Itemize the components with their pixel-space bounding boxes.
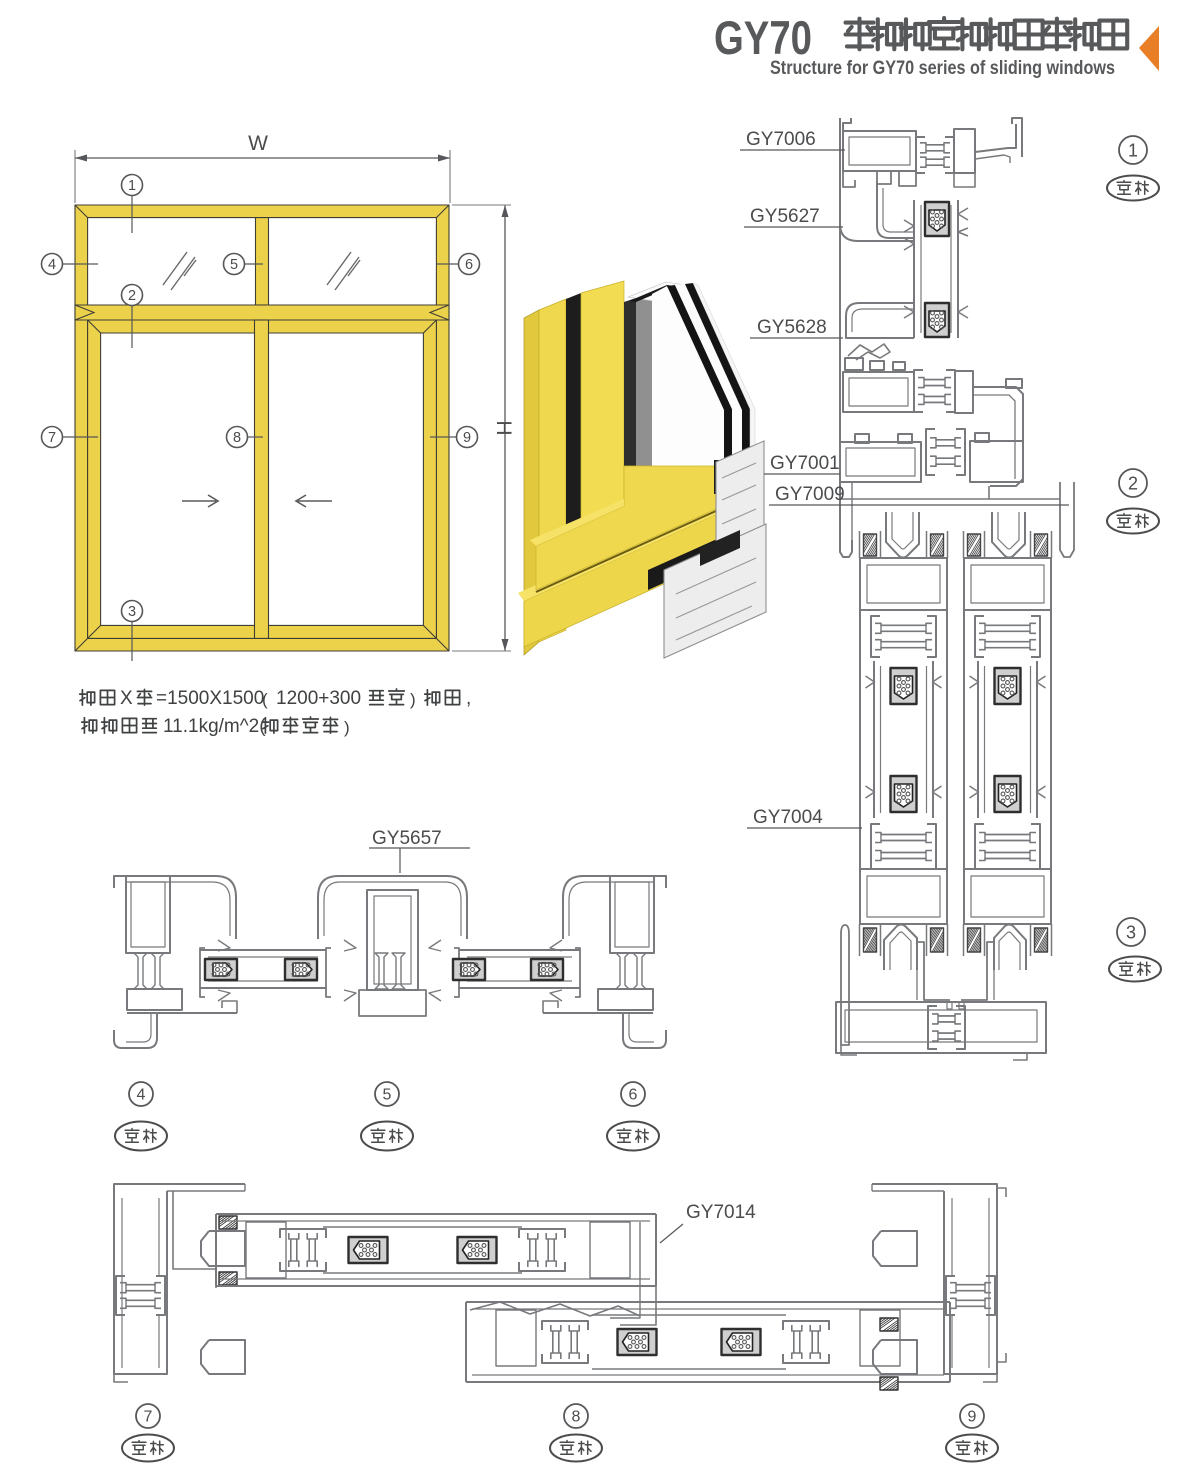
svg-text:GY7004: GY7004 [753,807,823,828]
svg-text:1200+300: 1200+300 [276,688,361,709]
svg-text:1: 1 [1128,140,1138,160]
svg-text:5: 5 [383,1087,392,1104]
svg-text:8: 8 [572,1409,581,1426]
svg-text:): ) [344,718,350,737]
svg-text:5: 5 [230,257,238,273]
svg-text:GY5628: GY5628 [757,317,827,338]
svg-text:6: 6 [629,1087,638,1104]
svg-text:1: 1 [128,178,136,194]
svg-text:X: X [120,688,133,709]
svg-text:GY5627: GY5627 [750,206,820,227]
svg-text:2: 2 [128,288,136,304]
svg-text:W: W [248,132,268,155]
svg-text:,: , [466,688,471,709]
svg-text:GY7009: GY7009 [775,484,845,505]
svg-text:GY7014: GY7014 [686,1202,756,1223]
svg-text:7: 7 [144,1409,153,1426]
svg-text:8: 8 [233,430,241,446]
svg-text:(: ( [262,690,268,709]
svg-text:6: 6 [465,257,473,273]
svg-text:3: 3 [1126,922,1136,942]
svg-text:4: 4 [48,257,56,273]
svg-text:3: 3 [128,604,136,620]
svg-text:9: 9 [463,430,471,446]
svg-text:GY7001: GY7001 [770,453,840,474]
svg-text:): ) [410,690,416,709]
svg-text:9: 9 [968,1409,977,1426]
svg-text:4: 4 [137,1087,146,1104]
svg-text:7: 7 [48,430,56,446]
svg-text:Structure for GY70 series of s: Structure for GY70 series of sliding win… [770,57,1115,79]
svg-text:GY7006: GY7006 [746,129,816,150]
svg-text:2: 2 [1128,473,1138,493]
svg-text:11.1kg/m^2(: 11.1kg/m^2( [163,716,266,737]
svg-text:=1500X1500: =1500X1500 [156,688,264,709]
svg-text:H: H [492,420,515,435]
svg-text:GY5657: GY5657 [372,828,442,849]
